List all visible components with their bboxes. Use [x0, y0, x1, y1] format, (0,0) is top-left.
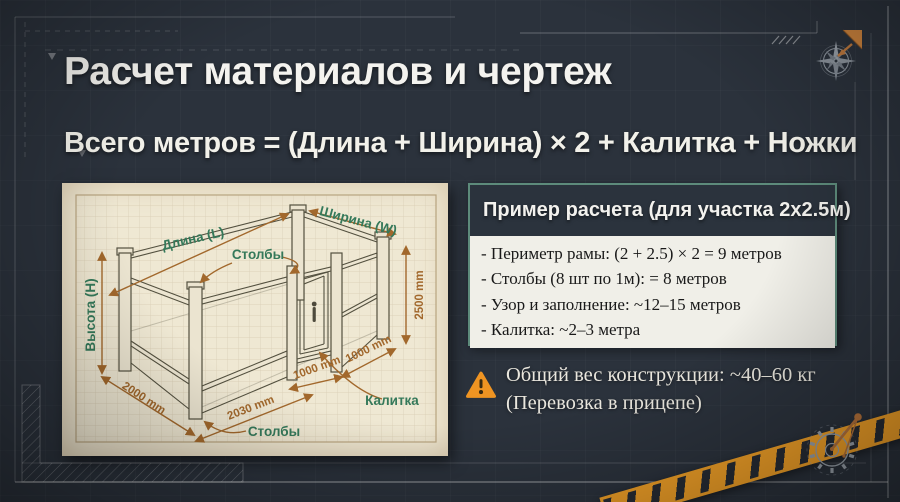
weight-warning: Общий вес конструкции: ~40–60 кг (Перево…	[466, 362, 816, 417]
warning-line-1: Общий вес конструкции: ~40–60 кг	[506, 362, 816, 390]
label-posts-top: Столбы	[232, 247, 284, 262]
example-box-body: - Периметр рамы: (2 + 2.5) × 2 = 9 метро…	[470, 236, 835, 348]
corner-triangle-decoration	[843, 30, 862, 49]
drawing-paper: Длина (L) Ширина (W) Высота (H) Столбы К…	[62, 183, 448, 456]
example-box: Пример расчета (для участка 2х2.5м) - Пе…	[468, 183, 837, 346]
label-gate: Калитка	[365, 393, 419, 408]
example-item: - Столбы (8 шт по 1м): = 8 метров	[481, 266, 824, 291]
example-item: - Периметр рамы: (2 + 2.5) × 2 = 9 метро…	[481, 241, 824, 266]
dim-2500: 2500 mm	[414, 270, 426, 319]
warning-triangle-icon	[466, 371, 496, 399]
example-item: - Узор и заполнение: ~12–15 метров	[481, 292, 824, 317]
label-posts-bottom: Столбы	[248, 424, 300, 439]
example-box-header: Пример расчета (для участка 2х2.5м)	[470, 185, 835, 236]
warning-text: Общий вес конструкции: ~40–60 кг (Перево…	[506, 362, 816, 417]
page-title: Расчет материалов и чертеж	[64, 50, 611, 94]
formula-text: Всего метров = (Длина + Ширина) × 2 + Ка…	[64, 127, 857, 160]
label-height: Высота (H)	[83, 278, 98, 351]
slide-root: Расчет материалов и чертеж Всего метров …	[0, 0, 900, 502]
warning-line-2: (Перевозка в прицепе)	[506, 390, 816, 418]
compass-rose-icon	[816, 41, 856, 81]
fence-frame-drawing: Длина (L) Ширина (W) Высота (H) Столбы К…	[62, 183, 448, 456]
example-item: - Калитка: ~2–3 метра	[481, 317, 824, 342]
